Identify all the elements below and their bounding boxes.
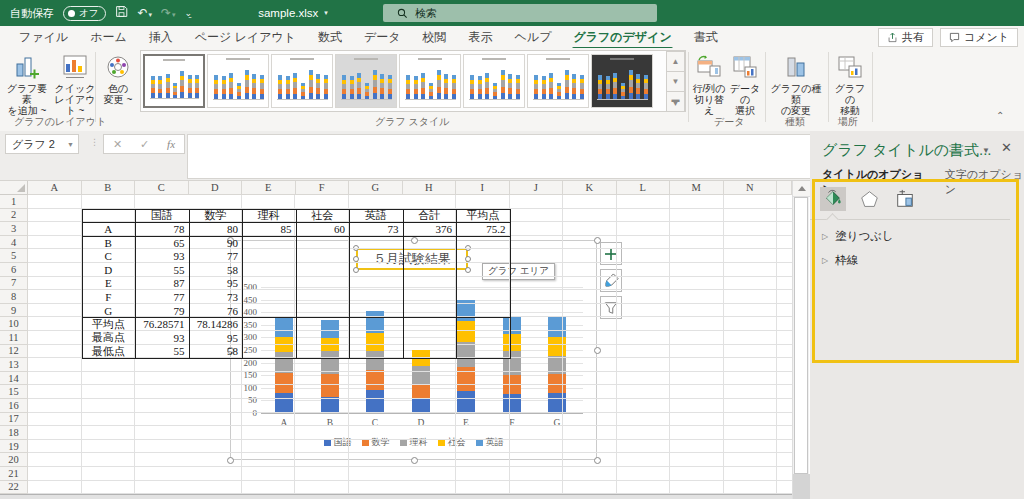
ribbon-tab-表示[interactable]: 表示: [458, 26, 504, 49]
share-label: 共有: [902, 30, 924, 45]
collapse-ribbon-icon[interactable]: ⌃: [996, 110, 1004, 121]
move-chart-button[interactable]: グラフの 移動: [830, 50, 870, 116]
pane-menu-caret-icon[interactable]: ▼: [982, 146, 990, 155]
cell-F3[interactable]: 60: [297, 222, 349, 236]
cell-G2[interactable]: 英語: [350, 209, 402, 223]
add-element-label-1: グラフ要素: [4, 83, 50, 105]
select-data-icon: [732, 50, 758, 80]
share-icon: [887, 32, 898, 43]
table-border-h: [82, 236, 511, 237]
table-border-v: [296, 209, 297, 359]
cell-D12[interactable]: 58: [190, 345, 242, 359]
column-header-L[interactable]: L: [617, 181, 671, 195]
search-placeholder: 検索: [415, 6, 437, 21]
row-header-7[interactable]: 7: [0, 277, 28, 291]
comment-label: コメント: [964, 30, 1009, 45]
row-header-17[interactable]: 17: [0, 413, 28, 427]
quick-layout-button[interactable]: クイック レイアウト ~: [52, 50, 98, 116]
add-chart-element-icon: [14, 50, 40, 80]
ribbon-tab-校閲[interactable]: 校閲: [412, 26, 458, 49]
cell-D9[interactable]: 76: [190, 304, 242, 318]
row-header-20[interactable]: 20: [0, 453, 28, 467]
cell-C9[interactable]: 79: [136, 304, 188, 318]
ribbon: グラフ要素 を追加 ~ クイック レイアウト ~ 色の 変更 ~ ▲ ▼ ▬▼: [0, 48, 1024, 132]
change-chart-type-icon: [783, 50, 809, 80]
column-header-J[interactable]: J: [510, 181, 564, 195]
gallery-more-icon[interactable]: ▬▼: [666, 91, 685, 112]
ribbon-tab-ホーム[interactable]: ホーム: [79, 26, 138, 49]
ribbon-tab-ページ レイアウト[interactable]: ページ レイアウト: [184, 26, 307, 49]
row-header-21[interactable]: 21: [0, 467, 28, 481]
row-header-6[interactable]: 6: [0, 263, 28, 277]
column-header-H[interactable]: H: [403, 181, 457, 195]
search-input[interactable]: 検索: [383, 4, 657, 22]
cell-C2[interactable]: 国語: [136, 209, 188, 223]
row-header-13[interactable]: 13: [0, 358, 28, 372]
table-border-v: [135, 209, 136, 359]
table-border-v: [349, 209, 350, 359]
title-bar: 自動保存 オフ ↶▾ ↷▾ ⌄̱ sample.xlsx ▾ 検索: [0, 0, 1024, 26]
scrollbar-thumb[interactable]: [794, 197, 808, 474]
table-border-v: [242, 209, 243, 359]
group-label-data: データ: [714, 115, 744, 129]
autosave-toggle[interactable]: オフ: [63, 6, 106, 21]
cell-B7[interactable]: E: [83, 277, 135, 291]
change-colors-icon: [105, 50, 131, 80]
row-header-1[interactable]: 1: [0, 195, 28, 209]
switch-row-column-button[interactable]: 行/列の 切り替え: [690, 50, 728, 116]
comment-icon: [949, 32, 960, 43]
filename-caret-icon: ▾: [324, 9, 328, 17]
table-border-v: [510, 209, 511, 359]
ribbon-tab-データ[interactable]: データ: [353, 26, 412, 49]
chart-style-thumbnail-style-7[interactable]: [527, 54, 589, 108]
row-header-2[interactable]: 2: [0, 209, 28, 223]
gallery-scroll: ▲ ▼ ▬▼: [666, 51, 685, 111]
ribbon-tab-書式[interactable]: 書式: [683, 26, 729, 49]
cell-D4[interactable]: 90: [190, 236, 242, 250]
cell-I2[interactable]: 平均点: [457, 209, 509, 223]
row-header-16[interactable]: 16: [0, 399, 28, 413]
chart-style-thumbnail-style-6[interactable]: [463, 54, 525, 108]
row-header-3[interactable]: 3: [0, 222, 28, 236]
cell-C3[interactable]: 78: [136, 222, 188, 236]
undo-button[interactable]: ↶▾: [137, 6, 152, 20]
cell-C4[interactable]: 65: [136, 236, 188, 250]
save-icon[interactable]: [115, 5, 128, 21]
cell-B9[interactable]: G: [83, 304, 135, 318]
select-data-button[interactable]: データの 選択: [726, 50, 764, 116]
cell-C11[interactable]: 93: [136, 331, 188, 345]
cell-D6[interactable]: 58: [190, 263, 242, 277]
row-header-10[interactable]: 10: [0, 317, 28, 331]
cell-I3[interactable]: 75.2: [457, 222, 509, 236]
chart-style-thumbnail-style-5[interactable]: [399, 54, 461, 108]
format-task-pane: グラフ タイトルの書式... ▼ ✕ タイトルのオプション ⌄ 文字のオプション…: [810, 131, 1024, 499]
quick-layout-label-2: レイアウト ~: [52, 94, 98, 116]
change-chart-type-button[interactable]: グラフの種類 の変更: [768, 50, 824, 116]
chart-styles-gallery: [140, 50, 686, 112]
row-header-14[interactable]: 14: [0, 372, 28, 386]
pane-close-icon[interactable]: ✕: [1001, 140, 1012, 155]
change-colors-label-2: 変更 ~: [104, 94, 133, 105]
select-data-label-1: データの: [726, 83, 764, 105]
cell-C6[interactable]: 55: [136, 263, 188, 277]
column-header-D[interactable]: D: [189, 181, 243, 195]
select-all-corner[interactable]: [0, 181, 28, 195]
cell-D8[interactable]: 73: [190, 290, 242, 304]
row-header-8[interactable]: 8: [0, 290, 28, 304]
table-border-h: [82, 222, 511, 223]
filename-text: sample.xlsx: [258, 7, 318, 19]
move-chart-label-1: グラフの: [830, 83, 870, 105]
pane-highlight-box: [812, 179, 1019, 363]
ribbon-tab-グラフのデザイン[interactable]: グラフのデザイン: [562, 26, 682, 49]
group-label-styles: グラフ スタイル: [375, 115, 449, 129]
cell-D3[interactable]: 80: [190, 222, 242, 236]
cell-D2[interactable]: 数学: [190, 209, 242, 223]
cell-F2[interactable]: 社会: [297, 209, 349, 223]
cell-D11[interactable]: 95: [190, 331, 242, 345]
scrollbar-lower-track[interactable]: [793, 474, 810, 499]
cell-C10[interactable]: 76.28571: [136, 317, 188, 331]
ribbon-tab-ヘルプ[interactable]: ヘルプ: [504, 26, 563, 49]
ribbon-tab-bar: ファイルホーム挿入ページ レイアウト数式データ校閲表示ヘルプグラフのデザイン書式…: [0, 26, 1024, 48]
column-header-N[interactable]: N: [724, 181, 778, 195]
redo-button[interactable]: ↷▾: [161, 6, 176, 20]
cell-E3[interactable]: 85: [243, 222, 295, 236]
chart-style-thumbnail-style-8[interactable]: [591, 54, 653, 108]
table-border-v: [456, 209, 457, 359]
quick-layout-icon: [62, 50, 88, 80]
row-header-15[interactable]: 15: [0, 385, 28, 399]
cell-B11[interactable]: 最高点: [83, 331, 135, 345]
row-header-5[interactable]: 5: [0, 249, 28, 263]
column-header-strip: [777, 181, 792, 195]
name-box-caret-icon: ▼: [67, 141, 74, 148]
cell-C12[interactable]: 55: [136, 345, 188, 359]
row-header-18[interactable]: 18: [0, 426, 28, 440]
autosave-state: オフ: [79, 7, 98, 20]
group-label-layout: グラフのレイアウト: [14, 115, 106, 129]
table-border-v: [189, 209, 190, 359]
change-type-label-1: グラフの種類: [768, 83, 824, 105]
cell-D10[interactable]: 78.14286: [190, 317, 242, 331]
cell-B10[interactable]: 平均点: [83, 317, 135, 331]
row-header-11[interactable]: 11: [0, 331, 28, 345]
cell-B8[interactable]: F: [83, 290, 135, 304]
cell-C8[interactable]: 77: [136, 290, 188, 304]
cell-E2[interactable]: 理科: [243, 209, 295, 223]
chart-style-thumbnail-style-4[interactable]: [335, 54, 397, 108]
column-header-C[interactable]: C: [135, 181, 189, 195]
cell-D7[interactable]: 95: [190, 277, 242, 291]
group-label-type: 種類: [785, 115, 805, 129]
table-border-v: [82, 209, 83, 359]
insert-function-icon[interactable]: fx: [167, 138, 175, 150]
cancel-icon[interactable]: ✕: [113, 138, 122, 151]
column-header-I[interactable]: I: [456, 181, 510, 195]
share-button[interactable]: 共有: [878, 28, 933, 47]
cell-B4[interactable]: B: [83, 236, 135, 250]
cell-C5[interactable]: 93: [136, 249, 188, 263]
toggle-knob-icon: [68, 10, 75, 17]
quick-layout-label-1: クイック: [55, 83, 96, 94]
comment-button[interactable]: コメント: [940, 28, 1018, 47]
cell-B3[interactable]: A: [83, 222, 135, 236]
gallery-up-icon[interactable]: ▲: [666, 51, 685, 72]
cell-C7[interactable]: 87: [136, 277, 188, 291]
row-header-4[interactable]: 4: [0, 236, 28, 250]
enter-icon[interactable]: ✓: [140, 138, 149, 151]
cell-H3[interactable]: 376: [404, 222, 456, 236]
table-border-h: [82, 358, 511, 359]
bottom-strip: [0, 494, 792, 499]
cell-B5[interactable]: C: [83, 249, 135, 263]
search-icon: [397, 8, 408, 19]
switch-rc-label-2: 切り替え: [690, 94, 728, 116]
chart-style-thumbnail-style-1[interactable]: [143, 54, 205, 108]
name-box[interactable]: グラフ 2 ▼: [5, 134, 79, 154]
table-border-h: [82, 209, 511, 210]
scroll-up-icon[interactable]: [793, 181, 810, 197]
pane-title: グラフ タイトルの書式...: [822, 141, 991, 160]
switch-rc-label-1: 行/列の: [692, 83, 725, 94]
column-header-K[interactable]: K: [563, 181, 617, 195]
table-border-h: [82, 317, 511, 318]
column-header-G[interactable]: G: [349, 181, 403, 195]
table-border-v: [403, 209, 404, 359]
autosave-label: 自動保存: [10, 6, 54, 21]
cell-B12[interactable]: 最低点: [83, 345, 135, 359]
formula-buttons: ✕ ✓ fx: [103, 134, 185, 154]
cell-G3[interactable]: 73: [350, 222, 402, 236]
vertical-scrollbar[interactable]: [792, 181, 809, 499]
chart-style-thumbnail-style-2[interactable]: [207, 54, 269, 108]
group-label-location: 場所: [838, 115, 858, 129]
cell-D5[interactable]: 77: [190, 249, 242, 263]
ribbon-tabs: ファイルホーム挿入ページ レイアウト数式データ校閲表示ヘルプグラフのデザイン書式: [0, 26, 729, 49]
customize-qat-icon[interactable]: ⌄̱: [185, 8, 193, 18]
excel-window: 自動保存 オフ ↶▾ ↷▾ ⌄̱ sample.xlsx ▾ 検索: [0, 0, 1024, 499]
row-header-12[interactable]: 12: [0, 345, 28, 359]
column-header-B[interactable]: B: [82, 181, 136, 195]
row-header-22[interactable]: 22: [0, 481, 28, 495]
cell-B6[interactable]: D: [83, 263, 135, 277]
row-header-19[interactable]: 19: [0, 440, 28, 454]
ribbon-tab-数式[interactable]: 数式: [307, 26, 353, 49]
switch-row-column-icon: [696, 50, 722, 80]
worksheet-grid: ５月試験結果 国語数学理科社会英語 グラフ エリア 05010015020025…: [0, 181, 810, 499]
chart-style-thumbnail-style-3[interactable]: [271, 54, 333, 108]
change-colors-button[interactable]: 色の 変更 ~: [98, 50, 138, 116]
column-header-A[interactable]: A: [28, 181, 82, 195]
name-box-value: グラフ 2: [12, 137, 55, 152]
ribbon-tab-挿入[interactable]: 挿入: [138, 26, 184, 49]
column-header-F[interactable]: F: [296, 181, 350, 195]
column-header-M[interactable]: M: [670, 181, 724, 195]
ribbon-tab-ファイル[interactable]: ファイル: [8, 26, 79, 49]
cell-H2[interactable]: 合計: [404, 209, 456, 223]
change-colors-label-1: 色の: [108, 83, 128, 94]
gallery-down-icon[interactable]: ▼: [666, 71, 685, 92]
add-chart-element-button[interactable]: グラフ要素 を追加 ~: [4, 50, 50, 116]
column-header-E[interactable]: E: [242, 181, 296, 195]
row-header-9[interactable]: 9: [0, 304, 28, 318]
move-chart-icon: [837, 50, 863, 80]
formula-bar-divider: ⋮: [90, 137, 100, 147]
document-title[interactable]: sample.xlsx ▾: [238, 0, 348, 26]
